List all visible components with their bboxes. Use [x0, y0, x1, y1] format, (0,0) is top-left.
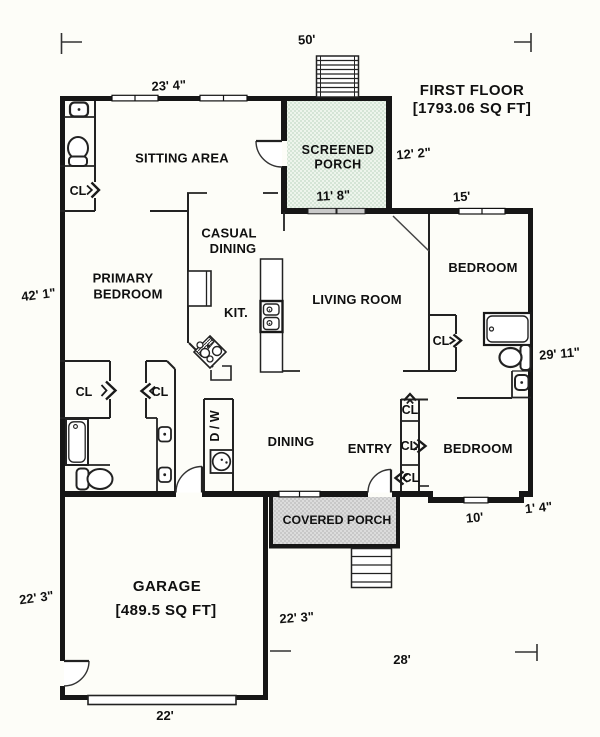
svg-text:10': 10' [465, 509, 484, 525]
svg-text:22' 3": 22' 3" [18, 588, 54, 608]
svg-text:[489.5 SQ FT]: [489.5 SQ FT] [115, 602, 216, 619]
svg-text:D / W: D / W [208, 410, 222, 441]
svg-text:SITTING AREA: SITTING AREA [135, 151, 229, 166]
svg-text:22' 3": 22' 3" [279, 609, 315, 626]
svg-text:CL: CL [403, 471, 420, 485]
svg-text:PORCH: PORCH [314, 158, 361, 172]
svg-text:CL: CL [152, 385, 169, 399]
svg-text:DINING: DINING [268, 434, 315, 449]
svg-text:CASUAL: CASUAL [201, 226, 256, 241]
svg-text:[1793.06 SQ FT]: [1793.06 SQ FT] [413, 100, 532, 117]
svg-text:42' 1": 42' 1" [20, 285, 56, 304]
svg-text:15': 15' [452, 188, 471, 204]
svg-text:11' 8": 11' 8" [316, 187, 351, 204]
svg-text:50': 50' [298, 32, 316, 48]
svg-text:GARAGE: GARAGE [133, 578, 201, 595]
svg-text:BEDROOM: BEDROOM [448, 260, 517, 275]
svg-text:29' 11": 29' 11" [538, 344, 580, 363]
svg-text:PRIMARY: PRIMARY [93, 271, 154, 286]
svg-text:22': 22' [156, 708, 174, 723]
svg-text:BEDROOM: BEDROOM [443, 441, 512, 456]
svg-text:28': 28' [393, 652, 411, 667]
svg-text:CL: CL [433, 334, 450, 348]
svg-text:CL: CL [402, 403, 419, 417]
svg-text:DINING: DINING [210, 241, 257, 256]
svg-text:FIRST FLOOR: FIRST FLOOR [420, 82, 524, 99]
svg-text:CL: CL [401, 439, 418, 453]
svg-text:COVERED PORCH: COVERED PORCH [283, 513, 392, 527]
svg-text:CL: CL [70, 184, 87, 198]
svg-text:1' 4": 1' 4" [524, 499, 553, 517]
svg-text:23' 4": 23' 4" [151, 77, 186, 94]
svg-text:KIT.: KIT. [224, 305, 248, 320]
svg-text:12' 2": 12' 2" [396, 145, 432, 163]
svg-text:BEDROOM: BEDROOM [93, 287, 162, 302]
svg-text:SCREENED: SCREENED [302, 143, 375, 157]
svg-text:ENTRY: ENTRY [348, 441, 393, 456]
svg-text:LIVING ROOM: LIVING ROOM [312, 292, 402, 307]
svg-text:CL: CL [76, 385, 93, 399]
